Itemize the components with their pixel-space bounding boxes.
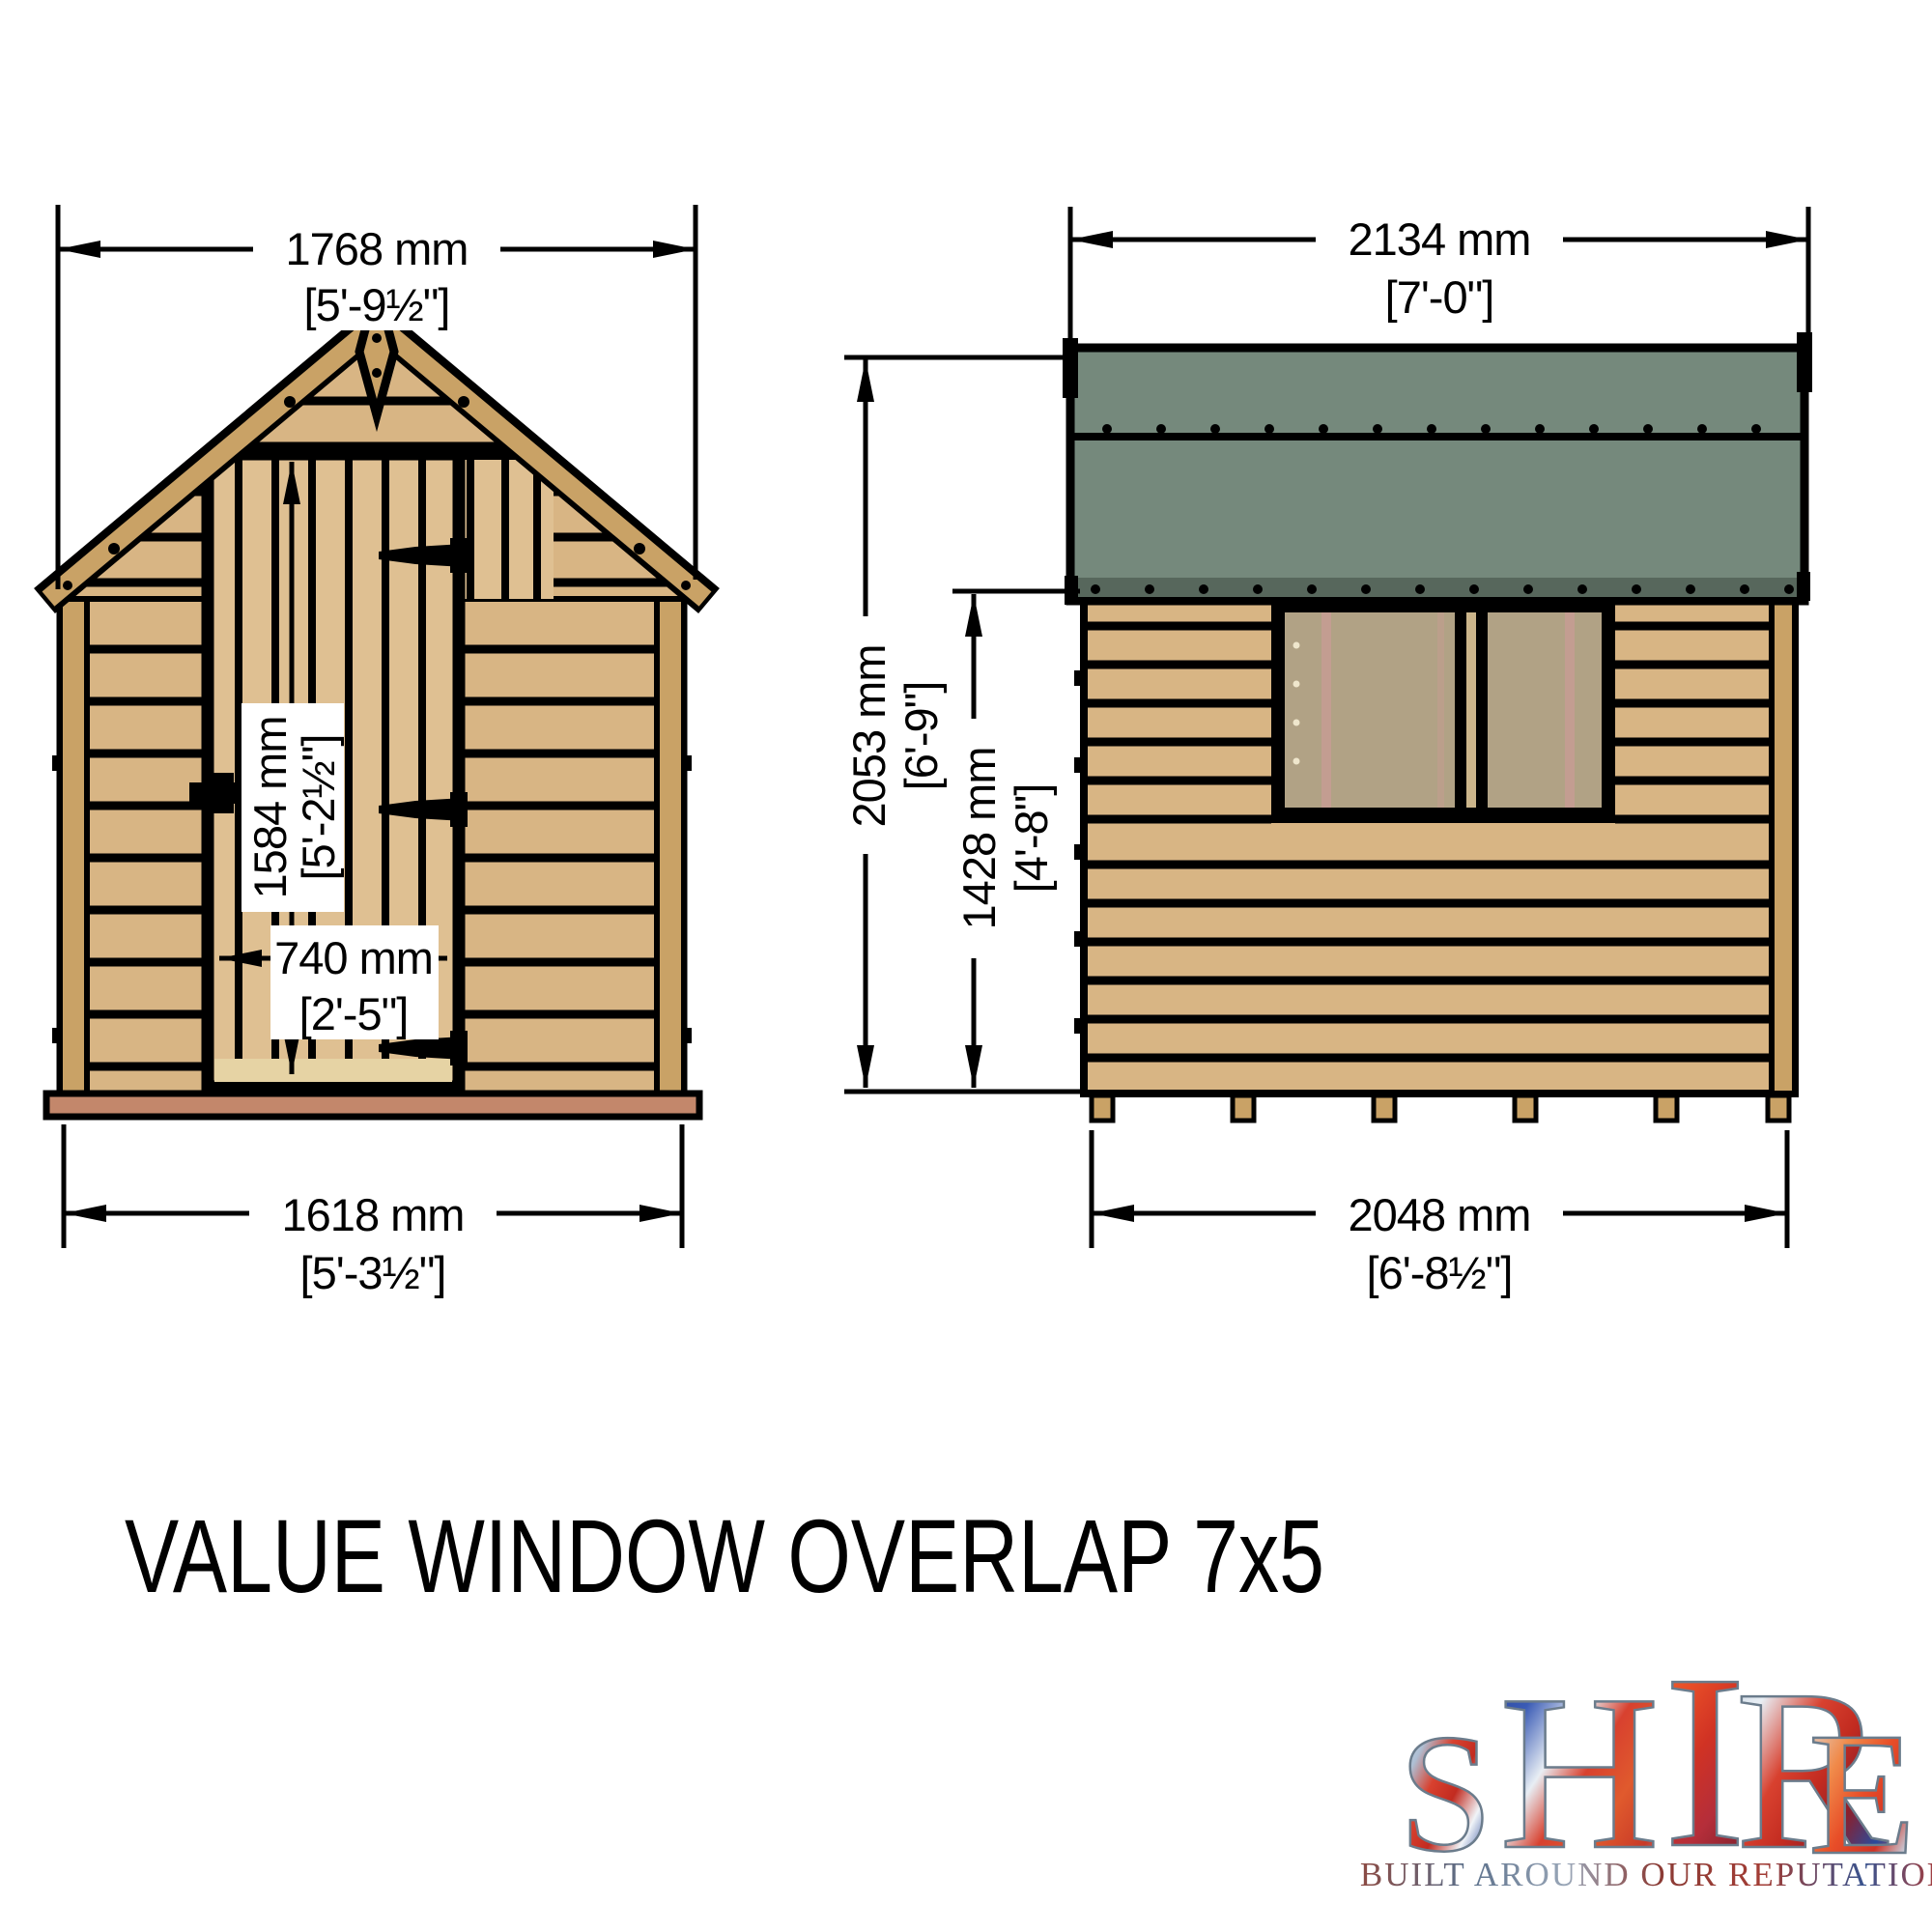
door-sill xyxy=(214,1059,452,1082)
front-right-corner-trim xyxy=(657,580,684,1094)
shed-technical-drawing: 1768 mm [5'-9½"] 1618 mm [5'-3½"] 740 mm… xyxy=(0,0,1932,1932)
door-height-imp: [5'-2½"] xyxy=(293,735,344,881)
side-roof-width-imp: [7'-0"] xyxy=(1385,271,1494,323)
side-base-width-imp: [6'-8½"] xyxy=(1367,1247,1513,1298)
front-roof-width-mm: 1768 mm xyxy=(286,223,469,274)
shed-spec-sheet: 1768 mm [5'-9½"] 1618 mm [5'-3½"] 740 mm… xyxy=(0,0,1932,1932)
side-total-height-imp: [6'-9"] xyxy=(895,682,947,791)
side-wall-height-mm: 1428 mm xyxy=(953,748,1005,930)
page-title: VALUE WINDOW OVERLAP 7x5 xyxy=(125,1497,1324,1615)
window-mullion xyxy=(1466,612,1476,808)
side-roof-width-mm: 2134 mm xyxy=(1349,213,1531,265)
door-width-mm: 740 mm xyxy=(274,932,433,983)
shed-window xyxy=(1271,599,1615,823)
front-base-width-imp: [5'-3½"] xyxy=(300,1247,446,1298)
shire-logo: S H I R E BUILT AROUND OUR REPUTATION xyxy=(1360,1623,1932,1899)
front-roof-width-imp: [5'-9½"] xyxy=(304,279,450,330)
logo-tagline: BUILT AROUND OUR REPUTATION xyxy=(1360,1856,1932,1893)
front-base-width-mm: 1618 mm xyxy=(282,1189,465,1240)
front-left-corner-trim xyxy=(60,580,87,1094)
side-roof xyxy=(1063,332,1812,605)
side-base-width-mm: 2048 mm xyxy=(1349,1189,1531,1240)
window-pane-right xyxy=(1488,612,1602,808)
side-wall-height-imp: [4'-8"] xyxy=(1006,784,1057,894)
door-height-mm: 1584 mm xyxy=(244,717,296,899)
front-floor-bearer xyxy=(46,1094,699,1117)
window-pane-left xyxy=(1285,612,1455,808)
side-elevation xyxy=(1063,332,1812,1121)
side-total-height-mm: 2053 mm xyxy=(843,645,895,828)
side-floor-feet xyxy=(1092,1095,1789,1121)
door-width-imp: [2'-5"] xyxy=(299,988,409,1039)
side-corner-trim xyxy=(1772,601,1795,1094)
